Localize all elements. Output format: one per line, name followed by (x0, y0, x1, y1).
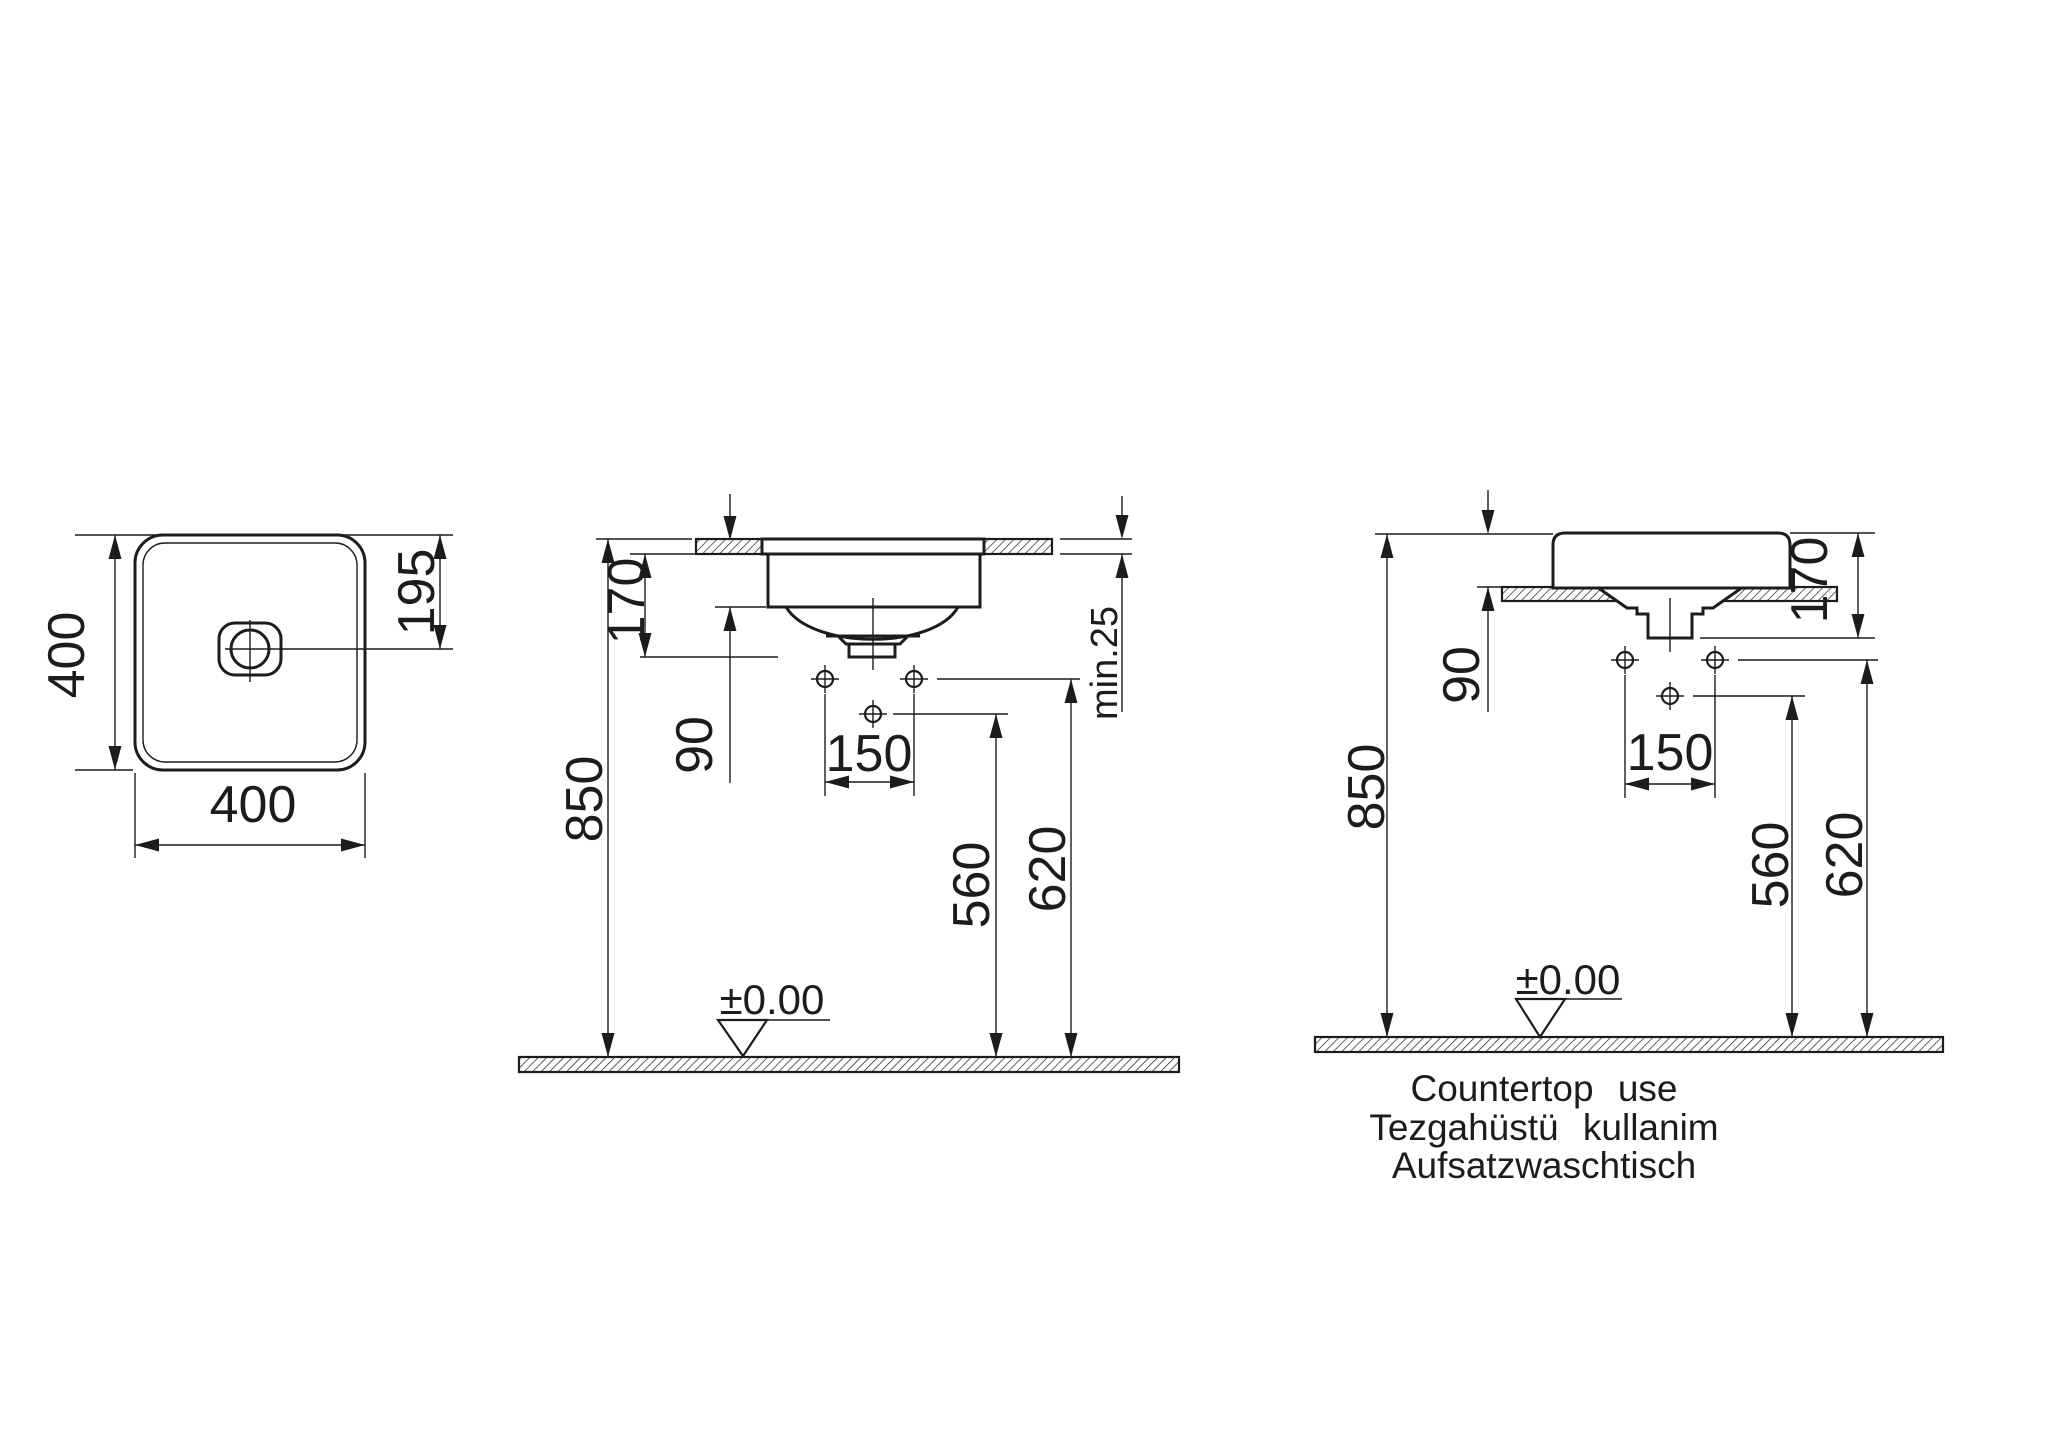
dim-width-400: 400 (135, 773, 365, 858)
counter-section-left (696, 539, 762, 554)
dim-label-below-counter: 90 (666, 716, 724, 774)
dim-below-counter-90: 90 (666, 494, 766, 783)
plan-view: 400 400 195 (38, 535, 453, 858)
dim-label-depth: 400 (38, 612, 96, 699)
dimension-arrow (1116, 515, 1129, 539)
dim-label-side-supply: 620 (1019, 826, 1077, 913)
dimension-arrow (1381, 1013, 1394, 1037)
semi-recessed-view: min.25 170 90 850 (519, 494, 1179, 1072)
dim-label-side-supply: 620 (1816, 812, 1874, 899)
dimension-arrow (602, 1033, 615, 1057)
floor-section (1315, 1037, 1943, 1052)
dim-label-tap-hole-spacing: 150 (826, 725, 913, 783)
dimension-arrow (990, 1033, 1003, 1057)
dimension-arrow (1852, 533, 1865, 557)
basin-body-section (1553, 533, 1790, 588)
dim-label-above-counter: 90 (1433, 646, 1491, 704)
dim-above-counter-90: 90 (1433, 490, 1495, 712)
dim-basin-height-170: 170 (1781, 533, 1865, 638)
dimension-arrow (1482, 510, 1495, 534)
datum-triangle (1516, 999, 1565, 1037)
basin-rim-section (762, 539, 984, 554)
dimension-arrow (1852, 614, 1865, 638)
dimension-arrow (990, 714, 1003, 738)
dimension-arrow (1786, 696, 1799, 720)
dimension-arrow (1381, 534, 1394, 558)
dim-tap-hole-spacing-150: 150 (825, 694, 914, 796)
caption-german: Aufsatzwaschtisch (1392, 1145, 1696, 1186)
dimension-arrow (602, 539, 615, 563)
dim-label-width: 400 (210, 776, 297, 834)
washbasin-installation-drawing: 400 400 195 (0, 0, 2048, 1446)
datum-triangle (718, 1020, 767, 1056)
technical-drawing-page: 400 400 195 (0, 0, 2048, 1446)
dim-label-rim-height: 850 (556, 756, 614, 843)
dimension-arrow (341, 839, 365, 852)
basin-body-section (768, 554, 980, 607)
dim-label-drain-offset: 195 (388, 549, 446, 636)
dim-label-basin-height: 170 (598, 558, 656, 645)
datum-label: ±0.00 (720, 976, 825, 1023)
dimension-arrow (1786, 1013, 1799, 1037)
dim-drain-offset-195: 195 (388, 535, 447, 649)
dimension-arrow (1861, 660, 1874, 684)
drain-tailpiece (849, 644, 895, 657)
dim-label-tap-hole-spacing: 150 (1627, 724, 1714, 782)
caption-english: Countertop use (1410, 1068, 1677, 1109)
datum-label: ±0.00 (1516, 956, 1621, 1003)
floor-section (519, 1057, 1179, 1072)
floor-datum: ±0.00 (1516, 956, 1622, 1037)
supply-holes (1611, 646, 1729, 710)
dimension-arrow (1065, 679, 1078, 703)
dimension-arrow (135, 839, 159, 852)
dimension-arrow (109, 535, 122, 559)
dimension-arrow (109, 746, 122, 770)
dim-basin-height-170: 170 (598, 554, 778, 657)
dim-label-counter-thickness: min.25 (1084, 606, 1126, 720)
dim-rim-height-850: 850 (1338, 534, 1396, 1037)
floor-datum: ±0.00 (718, 976, 830, 1056)
dimension-arrow (724, 516, 737, 540)
dimension-arrow (1482, 587, 1495, 611)
supply-holes (811, 665, 928, 728)
dim-label-mixer-supply: 560 (943, 842, 1001, 929)
dimension-arrow (724, 607, 737, 631)
dimension-arrow (1861, 1013, 1874, 1037)
dim-label-basin-height: 170 (1781, 537, 1839, 624)
dimension-arrow (1065, 1033, 1078, 1057)
bowl-underside-curve (786, 607, 958, 639)
countertop-view: 850 90 170 150 560 (1315, 490, 1943, 1186)
dimension-arrow (1116, 554, 1129, 578)
dim-label-rim-height: 850 (1338, 744, 1396, 831)
caption: Countertop use Tezgahüstü kullanim Aufsa… (1369, 1068, 1718, 1186)
dim-label-mixer-supply: 560 (1742, 822, 1800, 909)
counter-section-right (984, 539, 1052, 554)
caption-turkish: Tezgahüstü kullanim (1369, 1107, 1718, 1148)
